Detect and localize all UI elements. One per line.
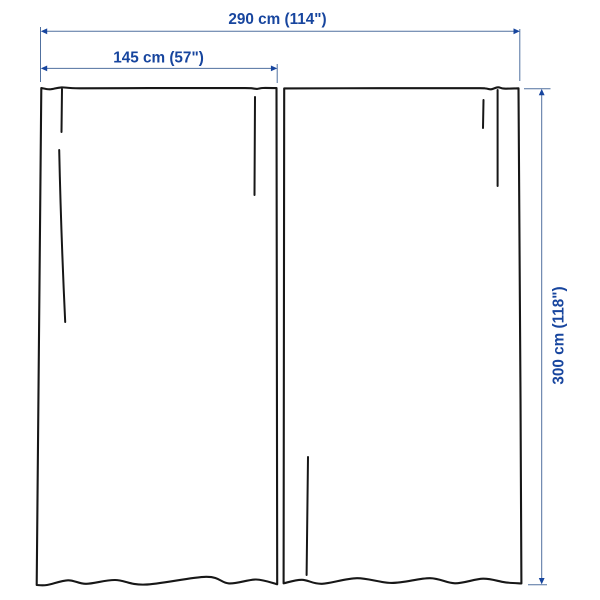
svg-text:290 cm (114"): 290 cm (114") bbox=[228, 11, 326, 28]
svg-text:145 cm (57"): 145 cm (57") bbox=[113, 49, 204, 66]
svg-text:300 cm (118"): 300 cm (118") bbox=[551, 286, 568, 384]
